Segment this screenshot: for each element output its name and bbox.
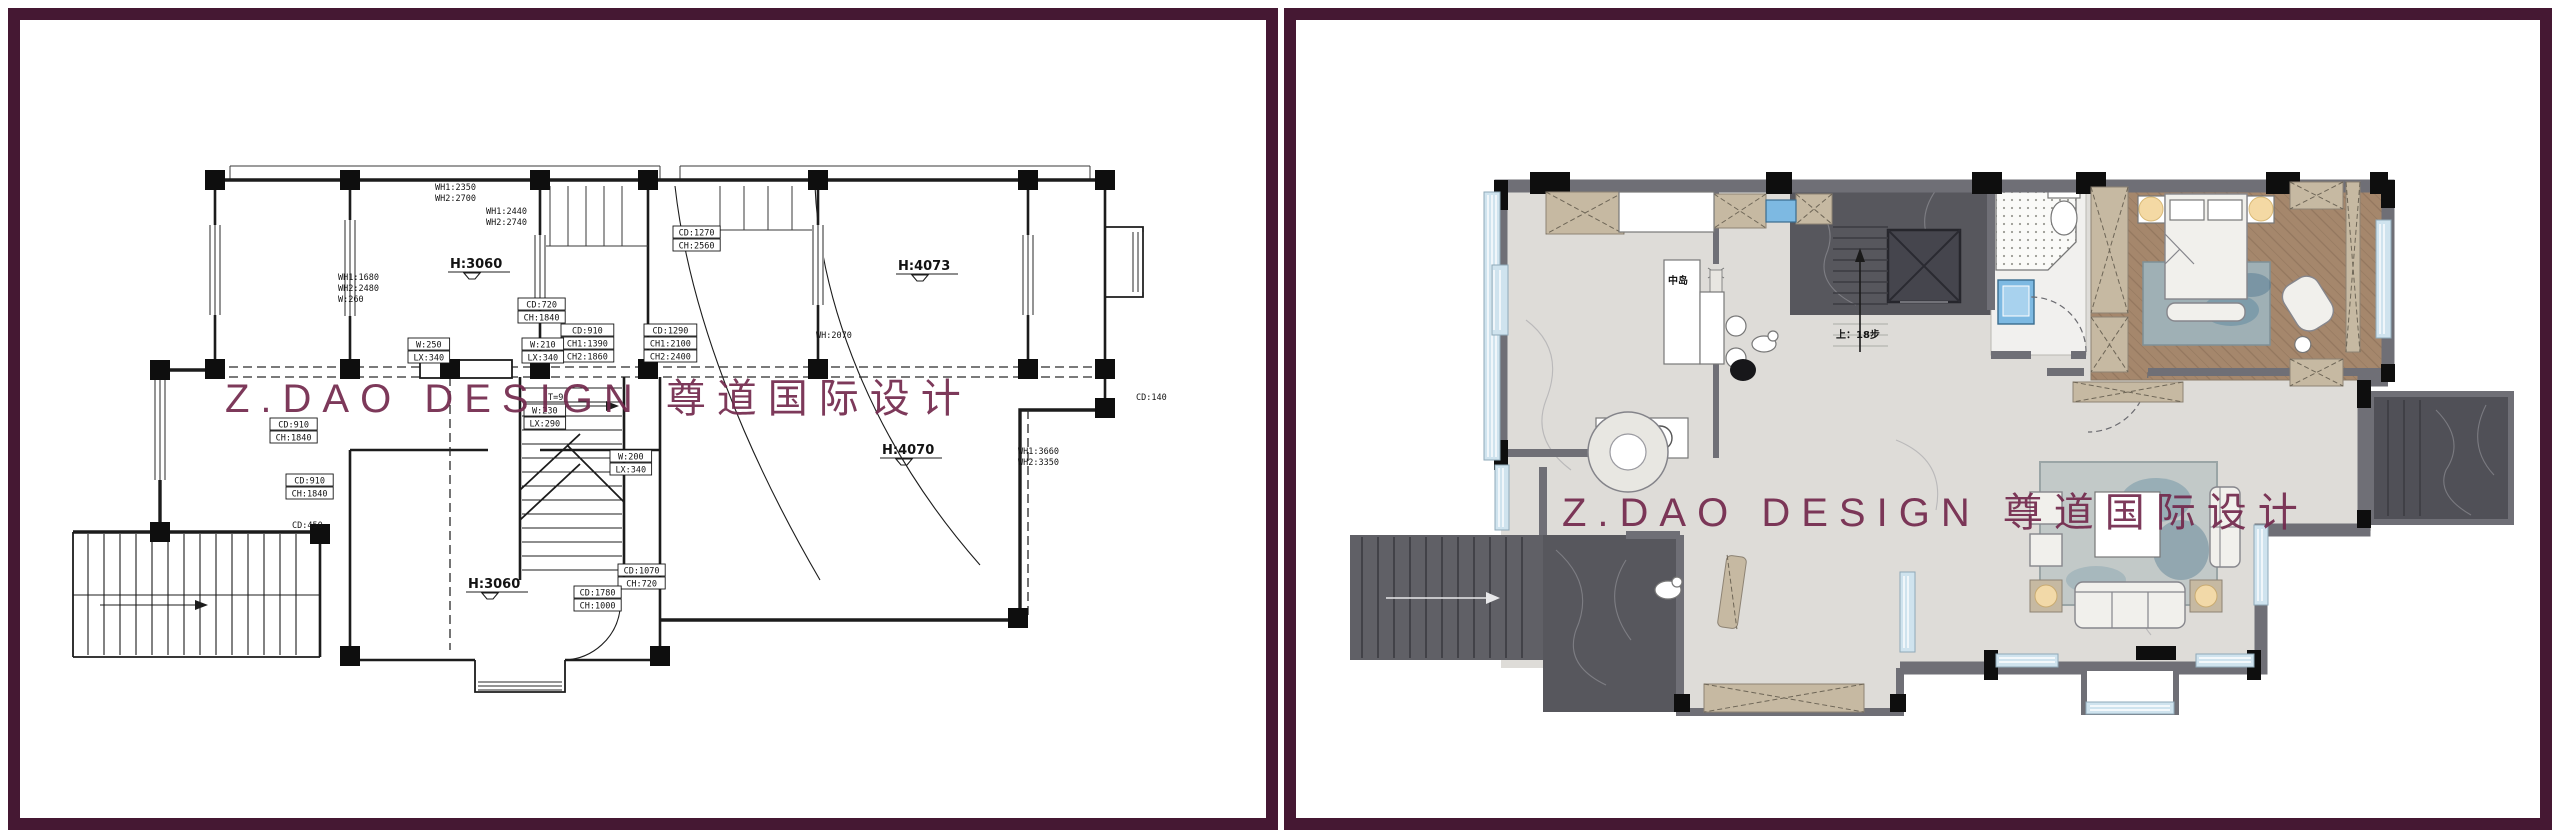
svg-text:CH1:2100: CH1:2100 (650, 340, 691, 350)
cabinet-panel (1704, 684, 1864, 712)
dimension-annotation: CD:1780CH:1000 (574, 586, 621, 612)
dimension-annotation: CD:720CH:1840 (518, 298, 565, 324)
watermark-right: Z.DAO DESIGN 尊道国际设计 (1562, 491, 2309, 535)
svg-text:WH2:2480: WH2:2480 (338, 284, 379, 294)
cabinet-panel (2091, 317, 2128, 372)
cad-walls (73, 166, 1143, 692)
side-table (2190, 580, 2222, 612)
dining-set (1588, 412, 1668, 492)
dimension-annotation: W:210LX:340 (522, 338, 564, 364)
bathroom (1991, 182, 2086, 355)
side-table (2030, 580, 2062, 612)
sofa-3seat (2075, 582, 2185, 628)
svg-text:CD:910: CD:910 (294, 477, 325, 487)
room-height-label: H:4070 (880, 443, 942, 465)
svg-text:CH:1840: CH:1840 (276, 434, 312, 444)
svg-text:H:3060: H:3060 (468, 577, 520, 592)
room-height-label: H:4073 (896, 259, 958, 281)
dimension-annotation: CD:910CH:1840 (270, 418, 317, 444)
svg-text:CH1:1390: CH1:1390 (567, 340, 608, 350)
rendered-floorplan-frame: 上：18步 (1284, 8, 2552, 830)
cabinet-panel (1796, 194, 1832, 224)
svg-text:WH1:1680: WH1:1680 (338, 273, 379, 283)
cad-floorplan: T=9 WH1:2440WH2:2740WH1:1680WH2:2480W:26… (20, 20, 1266, 818)
cabinet-panel (2290, 359, 2343, 386)
dimension-annotation: CD:450 (292, 521, 323, 531)
svg-text:LX:340: LX:340 (527, 354, 558, 364)
dimension-annotation: WH1:2440WH2:2740 (486, 207, 527, 228)
svg-text:WH1:3660: WH1:3660 (1018, 447, 1059, 457)
cabinet-panel (1714, 194, 1766, 228)
svg-text:WH2:2740: WH2:2740 (486, 218, 527, 228)
svg-text:LX:290: LX:290 (529, 420, 560, 430)
svg-text:WH1:2350: WH1:2350 (435, 183, 476, 193)
svg-text:CD:1290: CD:1290 (652, 327, 688, 337)
watermark-left: Z.DAO DESIGN 尊道国际设计 (225, 377, 972, 421)
elevator (1888, 230, 1960, 302)
room-height-label: H:3060 (466, 577, 528, 599)
svg-text:WH2:3350: WH2:3350 (1018, 458, 1059, 468)
toilet (2048, 186, 2080, 235)
svg-text:CH2:2400: CH2:2400 (650, 353, 691, 363)
svg-text:CH:1840: CH:1840 (292, 490, 328, 500)
dimension-annotation: CD:140 (1136, 393, 1167, 403)
svg-text:H:4070: H:4070 (882, 443, 934, 458)
room-height-label: H:3060 (448, 257, 510, 279)
dimension-annotation: WH1:3660WH2:3350 (1018, 447, 1059, 468)
dimension-annotation: CD:1270CH:2560 (673, 226, 720, 252)
svg-text:CD:1780: CD:1780 (580, 589, 616, 599)
armchair (2030, 534, 2062, 566)
dimension-annotation: CD:1070CH:720 (618, 564, 665, 590)
bathroom-sink (1998, 280, 2034, 324)
island-label: 中岛 (1668, 274, 1688, 287)
svg-text:CD:910: CD:910 (278, 421, 309, 431)
entry-corridor (2371, 394, 2511, 522)
svg-text:WH1:2440: WH1:2440 (486, 207, 527, 217)
svg-text:H:4073: H:4073 (898, 259, 950, 274)
svg-text:CD:450: CD:450 (292, 521, 323, 531)
svg-text:CH:1840: CH:1840 (524, 314, 560, 324)
svg-text:W:210: W:210 (530, 341, 556, 351)
svg-text:CD:1270: CD:1270 (679, 229, 715, 239)
dimension-annotation: CD:910CH1:1390CH2:1860 (561, 324, 614, 363)
cabinet-panel (1546, 192, 1624, 234)
dimension-annotation: CD:1290CH1:2100CH2:2400 (644, 324, 697, 363)
svg-text:CH:2560: CH:2560 (679, 242, 715, 252)
svg-text:CH:720: CH:720 (626, 580, 657, 590)
cad-floorplan-frame: T=9 WH1:2440WH2:2740WH1:1680WH2:2480W:26… (8, 8, 1278, 830)
dimension-annotation: W:200LX:340 (610, 450, 652, 476)
dimension-annotation: WH1:2350WH2:2700 (435, 183, 476, 204)
rendered-floorplan: 上：18步 (1296, 20, 2540, 818)
living-room (2030, 462, 2240, 628)
dimension-annotation: WH1:1680WH2:2480W:260 (338, 273, 379, 305)
cabinet-panel (2073, 382, 2183, 402)
cabinet-panel (2091, 187, 2128, 313)
dimension-annotation: W:250LX:340 (408, 338, 450, 364)
dimension-annotation: CD:910CH:1840 (286, 474, 333, 500)
svg-text:WH2:2700: WH2:2700 (435, 194, 476, 204)
svg-text:LX:340: LX:340 (413, 354, 444, 364)
svg-text:H:3060: H:3060 (450, 257, 502, 272)
svg-text:W:250: W:250 (416, 341, 442, 351)
balcony-bay (2084, 668, 2176, 714)
exterior-staircase (73, 534, 320, 655)
exterior-stair (1350, 535, 1680, 712)
svg-text:CH2:1860: CH2:1860 (567, 353, 608, 363)
cabinet-panel (2346, 182, 2360, 352)
cabinet-panel (2290, 182, 2343, 209)
stair-note: 上：18步 (1836, 328, 1880, 341)
svg-text:CD:140: CD:140 (1136, 393, 1167, 403)
svg-text:W:200: W:200 (618, 453, 644, 463)
svg-text:CD:720: CD:720 (526, 301, 557, 311)
svg-text:LX:340: LX:340 (615, 466, 646, 476)
svg-text:CH:1000: CH:1000 (580, 602, 616, 612)
dimension-annotation: WH:2070 (816, 331, 852, 341)
svg-text:WH:2070: WH:2070 (816, 331, 852, 341)
svg-text:CD:1070: CD:1070 (624, 567, 660, 577)
svg-text:CD:910: CD:910 (572, 327, 603, 337)
svg-text:W:260: W:260 (338, 295, 364, 305)
